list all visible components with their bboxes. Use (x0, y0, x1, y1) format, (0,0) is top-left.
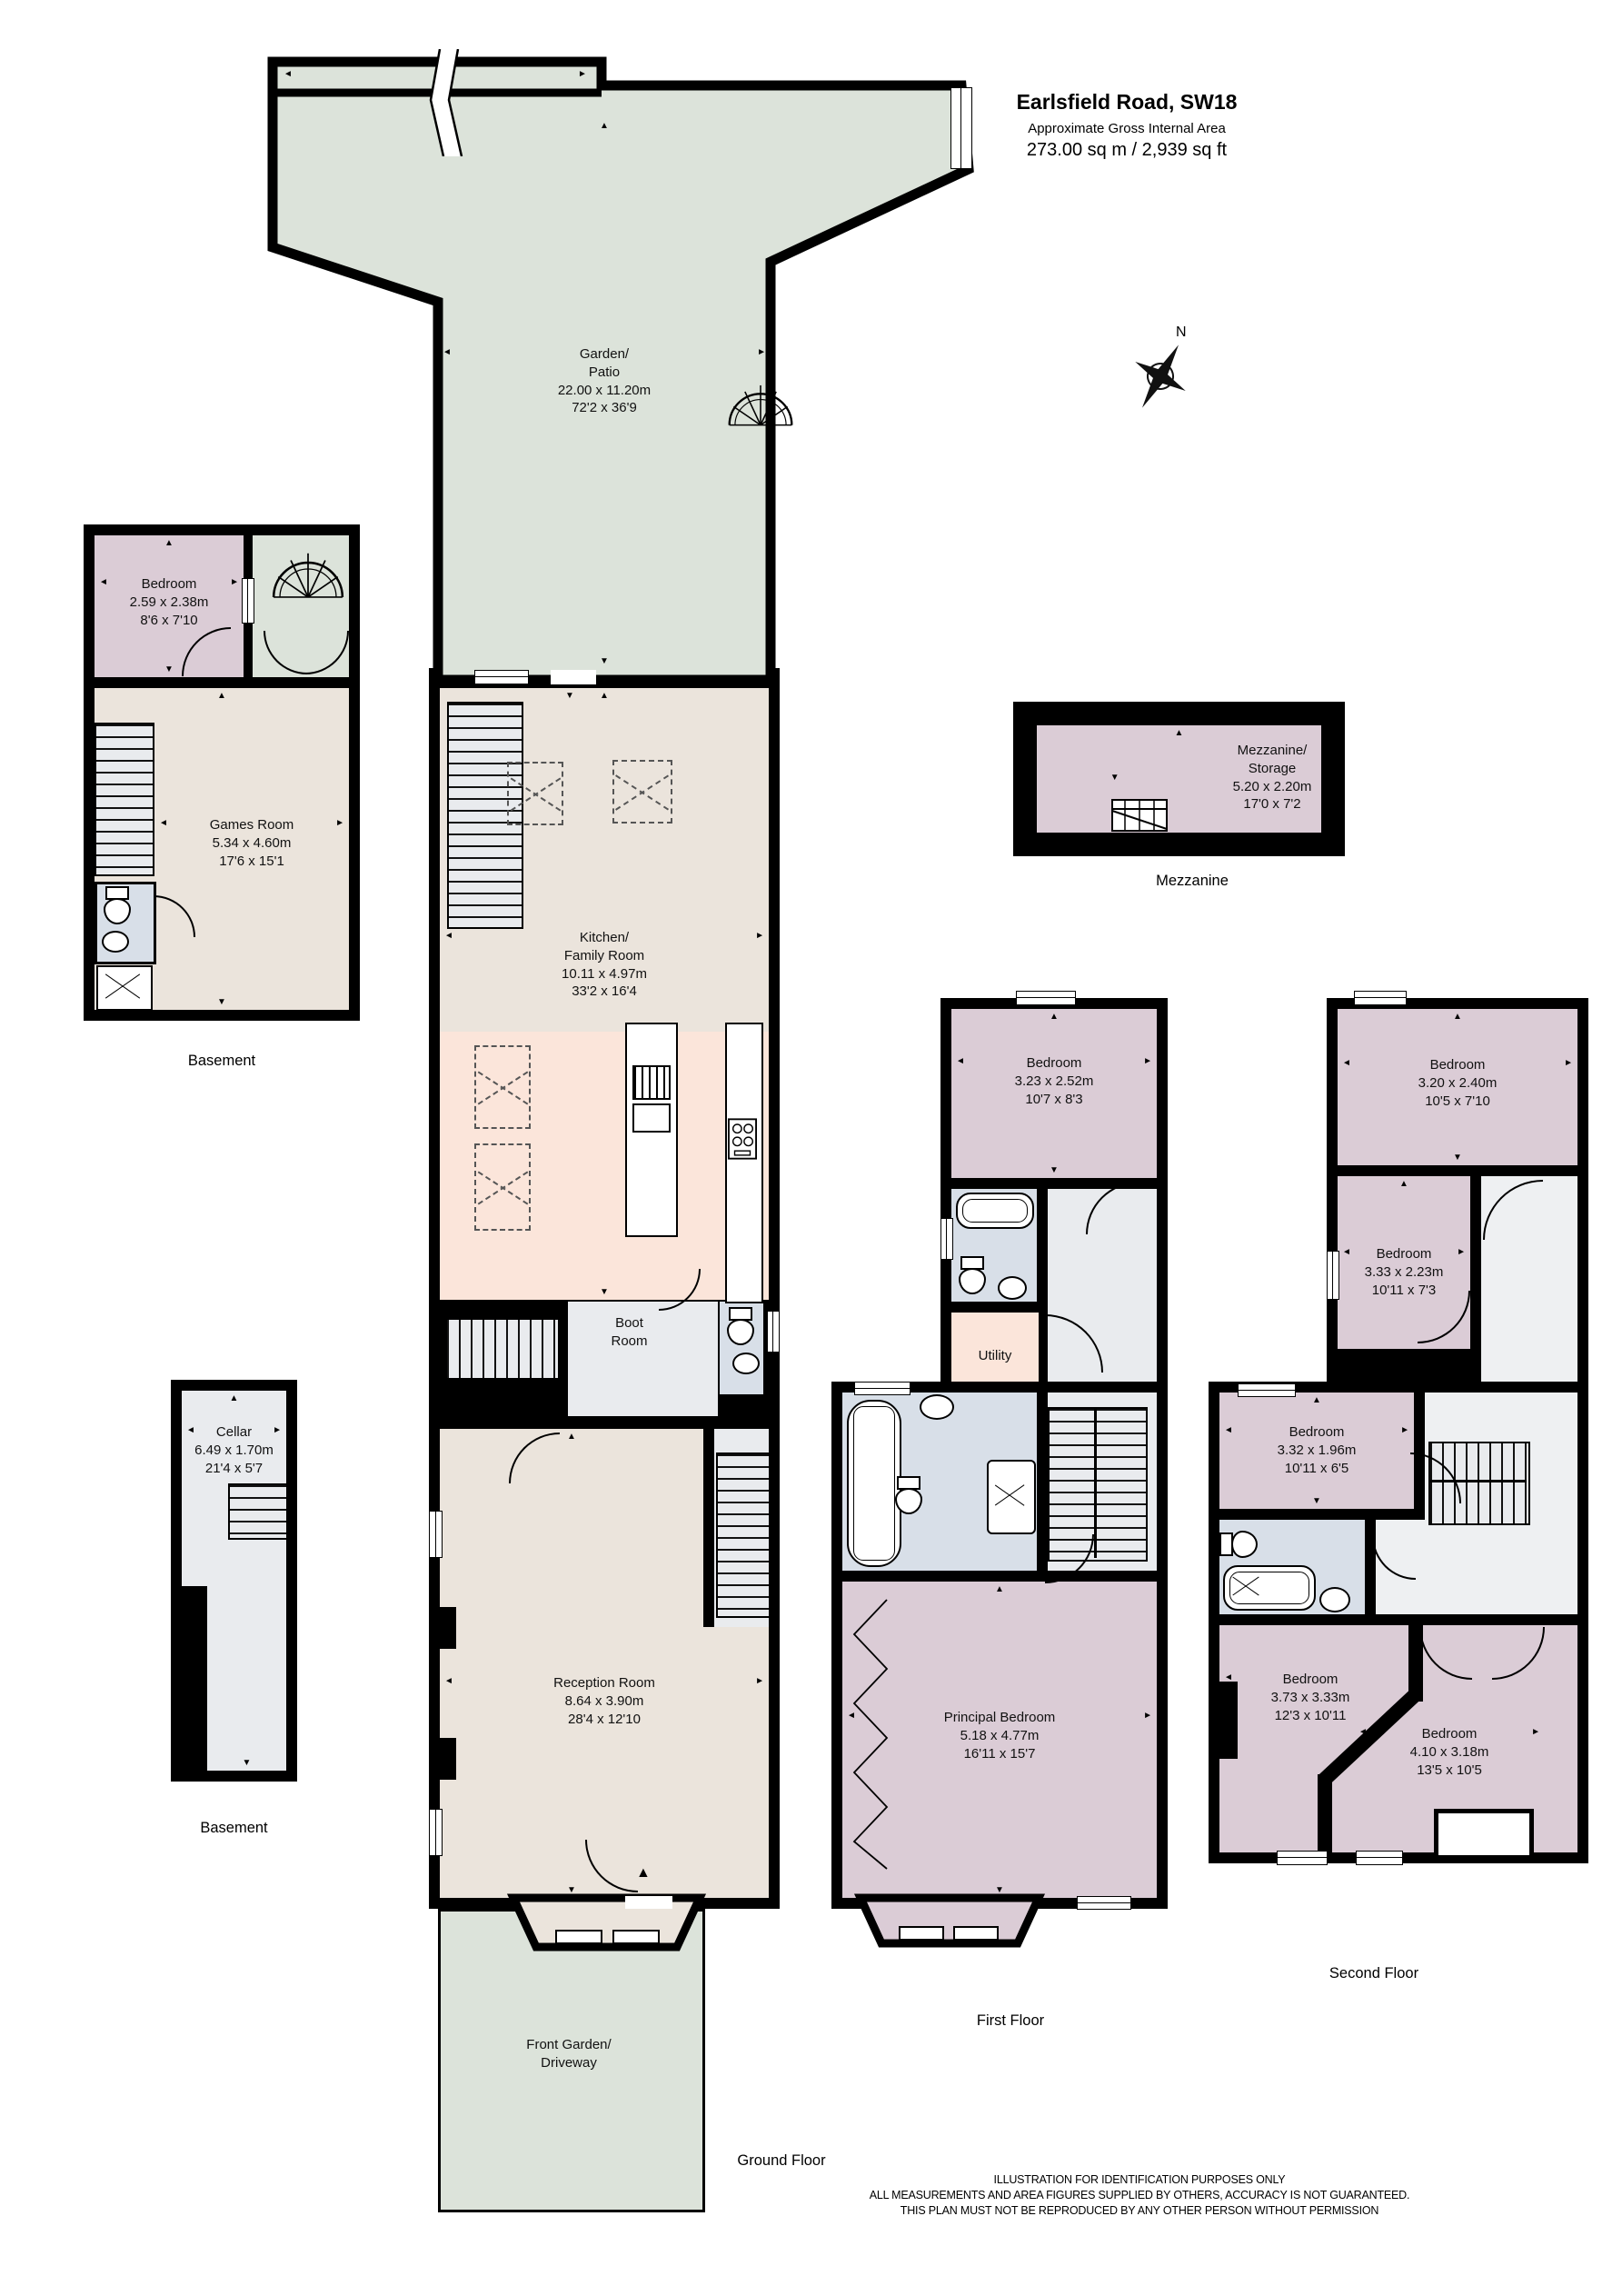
room-name: Boot (568, 1314, 691, 1333)
room-dim-metric: 5.34 x 4.60m (154, 834, 349, 853)
window (1354, 991, 1407, 1005)
sink-fixture (998, 1276, 1027, 1300)
dimension-arrow: ► (578, 69, 587, 79)
chimney-breast (440, 1738, 456, 1780)
room-dim-metric: 6.49 x 1.70m (182, 1442, 286, 1460)
room-name: Bedroom (1338, 1056, 1577, 1074)
dimension-arrow: ▼ (565, 691, 574, 701)
room-name: Garden/ (438, 345, 771, 364)
sink-fixture (732, 1353, 760, 1374)
room-label-games-room: Games Room 5.34 x 4.60m 17'6 x 15'1 (154, 816, 349, 870)
room-dim-metric: 8.64 x 3.90m (440, 1692, 769, 1711)
shower-lines-icon (1229, 1571, 1263, 1602)
room-dim-metric: 3.33 x 2.23m (1338, 1263, 1470, 1282)
window (242, 578, 254, 624)
room-cellar-lower (207, 1586, 286, 1771)
ground-corridor (691, 1302, 718, 1416)
room-label-sf-bedroom3: Bedroom 3.32 x 1.96m 10'11 x 6'5 (1219, 1423, 1414, 1477)
room-name: Bedroom (951, 1054, 1157, 1073)
room-dim-imperial: 12'3 x 10'11 (1219, 1707, 1401, 1725)
room-name: Mezzanine/ (1181, 742, 1363, 760)
room-name: Principal Bedroom (842, 1709, 1157, 1727)
room-dim-metric: 10.11 x 4.97m (440, 965, 769, 983)
floor-label-basement-2: Basement (171, 1820, 297, 1837)
room-name: Reception Room (440, 1674, 769, 1692)
shower-lines-icon (100, 969, 145, 1003)
ladder-icon (1110, 798, 1169, 833)
page-subtitle: Approximate Gross Internal Area (945, 121, 1309, 136)
garden-gate (950, 87, 972, 169)
page-title: Earlsfield Road, SW18 (945, 90, 1309, 115)
spiral-staircase-icon (269, 545, 347, 604)
room-label-sf-bedroom1: Bedroom 3.20 x 2.40m 10'5 x 7'10 (1338, 1056, 1577, 1110)
room-label-garden: Garden/ Patio 22.00 x 11.20m 72'2 x 36'9 (438, 345, 771, 417)
hob-icon (728, 1118, 757, 1160)
window (940, 1218, 953, 1260)
room-dim-imperial: 16'11 x 15'7 (842, 1745, 1157, 1763)
island-appliance (632, 1065, 671, 1100)
room-reception (440, 1429, 703, 1898)
room-dim-imperial: 10'5 x 7'10 (1338, 1093, 1577, 1111)
window (474, 670, 529, 684)
room-dim-imperial: 13'5 x 10'5 (1354, 1762, 1545, 1780)
room-dim-metric: 3.73 x 3.33m (1219, 1689, 1401, 1707)
room-name: Driveway (438, 2054, 700, 2072)
disclaimer-line: ILLUSTRATION FOR IDENTIFICATION PURPOSES… (861, 2172, 1418, 2188)
room-reception-right (703, 1627, 769, 1898)
room-name: Utility (951, 1347, 1039, 1365)
room-dim-metric: 3.32 x 1.96m (1219, 1442, 1414, 1460)
room-label-reception: Reception Room 8.64 x 3.90m 28'4 x 12'10 (440, 1674, 769, 1728)
room-dim-metric: 3.23 x 2.52m (951, 1073, 1157, 1091)
staircase (716, 1452, 771, 1618)
room-name: Room (568, 1333, 691, 1351)
window (429, 1809, 443, 1856)
room-dim-metric: 5.20 x 2.20m (1181, 778, 1363, 796)
staircase (228, 1483, 288, 1540)
room-label-basement-bedroom: Bedroom 2.59 x 2.38m 8'6 x 7'10 (95, 575, 244, 629)
room-label-sf-bedroom2: Bedroom 3.33 x 2.23m 10'11 x 7'3 (1338, 1245, 1470, 1299)
floor-label-ground: Ground Floor (700, 2152, 863, 2170)
room-label-ff-bedroom: Bedroom 3.23 x 2.52m 10'7 x 8'3 (951, 1054, 1157, 1108)
sink-fixture (1319, 1587, 1350, 1612)
disclaimer-line: ALL MEASUREMENTS AND AREA FIGURES SUPPLI… (861, 2188, 1418, 2203)
bay-window (836, 1887, 1054, 1952)
room-dim-imperial: 17'0 x 7'2 (1181, 795, 1363, 814)
room-dim-metric: 2.59 x 2.38m (95, 594, 244, 612)
room-label-sf-bedroom5: Bedroom 4.10 x 3.18m 13'5 x 10'5 (1354, 1725, 1545, 1779)
floorplan-canvas: ◄ ► Garden/ Patio 22.00 x 11.20m 72'2 x … (0, 0, 1622, 2296)
room-name: Patio (438, 364, 771, 382)
room-name: Kitchen/ (440, 929, 769, 947)
skylight-dashed (474, 1045, 531, 1129)
toilet-fixture (895, 1476, 922, 1514)
window (1016, 991, 1076, 1005)
kitchen-counter (725, 1023, 763, 1303)
room-dim-imperial: 10'11 x 6'5 (1219, 1460, 1414, 1478)
toilet-fixture (727, 1307, 754, 1345)
room-label-mezzanine: Mezzanine/ Storage 5.20 x 2.20m 17'0 x 7… (1181, 742, 1363, 814)
skylight-dashed (474, 1143, 531, 1231)
shower-lines-icon (990, 1463, 1029, 1527)
skylight-dashed (507, 762, 563, 825)
window (1238, 1383, 1296, 1397)
room-dim-imperial: 28'4 x 12'10 (440, 1711, 769, 1729)
room-name: Family Room (440, 947, 769, 965)
skylight-dashed (612, 760, 672, 824)
room-label-front-garden: Front Garden/ Driveway (438, 2036, 700, 2072)
toilet-fixture (959, 1256, 986, 1294)
room-dim-metric: 5.18 x 4.77m (842, 1727, 1157, 1745)
room-label-kitchen: Kitchen/ Family Room 10.11 x 4.97m 33'2 … (440, 929, 769, 1001)
room-dim-imperial: 10'11 x 7'3 (1338, 1282, 1470, 1300)
island-oven (632, 1103, 671, 1133)
room-dim-imperial: 8'6 x 7'10 (95, 612, 244, 630)
room-name: Bedroom (1354, 1725, 1545, 1743)
window (767, 1311, 780, 1353)
disclaimer-line: THIS PLAN MUST NOT BE REPRODUCED BY ANY … (861, 2203, 1418, 2219)
compass-north-label: N (1176, 324, 1187, 340)
dimension-arrow: ◄ (284, 69, 293, 79)
floor-label-first: First Floor (956, 2012, 1065, 2030)
room-name: Games Room (154, 816, 349, 834)
toilet-fixture (104, 886, 131, 924)
room-dim-imperial: 33'2 x 16'4 (440, 983, 769, 1001)
room-dim-metric: 4.10 x 3.18m (1354, 1743, 1545, 1762)
sink-fixture (920, 1394, 954, 1420)
compass-icon: N (1119, 320, 1201, 420)
room-name: Bedroom (1219, 1671, 1401, 1689)
bathtub-fixture (956, 1193, 1034, 1229)
storage-recess (1434, 1809, 1534, 1860)
room-label-principal: Principal Bedroom 5.18 x 4.77m 16'11 x 1… (842, 1709, 1157, 1762)
plan-break-zigzag-icon (425, 49, 465, 156)
page-area: 273.00 sq m / 2,939 sq ft (945, 140, 1309, 161)
stair-divider (1094, 1407, 1097, 1558)
room-name: Bedroom (1219, 1423, 1414, 1442)
floor-label-second: Second Floor (1319, 1965, 1428, 1982)
window (1077, 1896, 1131, 1910)
room-dim-imperial: 72'2 x 36'9 (438, 399, 771, 417)
bathtub-fixture (847, 1400, 901, 1567)
entrance-arrow: ▲ (636, 1865, 651, 1882)
window (1277, 1851, 1328, 1865)
room-name: Cellar (182, 1423, 286, 1442)
front-door-opening (625, 1896, 672, 1909)
wall (1318, 1774, 1332, 1852)
floor-label-basement: Basement (84, 1053, 360, 1070)
room-label-boot-room: Boot Room (568, 1314, 691, 1351)
disclaimer: ILLUSTRATION FOR IDENTIFICATION PURPOSES… (861, 2172, 1418, 2219)
garden-door-opening (551, 670, 596, 684)
staircase (445, 1318, 560, 1380)
room-name: Bedroom (1338, 1245, 1470, 1263)
room-dim-metric: 3.20 x 2.40m (1338, 1074, 1577, 1093)
room-name: Bedroom (95, 575, 244, 594)
floor-label-mezzanine: Mezzanine (1138, 873, 1247, 890)
toilet-fixture (1219, 1531, 1258, 1558)
room-dim-imperial: 21'4 x 5'7 (182, 1460, 286, 1478)
room-label-cellar: Cellar 6.49 x 1.70m 21'4 x 5'7 (182, 1423, 286, 1477)
window (854, 1382, 911, 1395)
bay-window (491, 1887, 718, 1958)
room-dim-metric: 22.00 x 11.20m (438, 382, 771, 400)
room-dim-imperial: 17'6 x 15'1 (154, 853, 349, 871)
room-dim-imperial: 10'7 x 8'3 (951, 1091, 1157, 1109)
room-name: Storage (1181, 760, 1363, 778)
room-label-sf-bedroom4: Bedroom 3.73 x 3.33m 12'3 x 10'11 (1219, 1671, 1401, 1724)
room-name: Front Garden/ (438, 2036, 700, 2054)
room-label-utility: Utility (951, 1347, 1039, 1365)
sink-fixture (102, 931, 129, 953)
chimney-breast (440, 1607, 456, 1649)
window (429, 1511, 443, 1558)
window (1356, 1851, 1403, 1865)
staircase (95, 723, 154, 876)
